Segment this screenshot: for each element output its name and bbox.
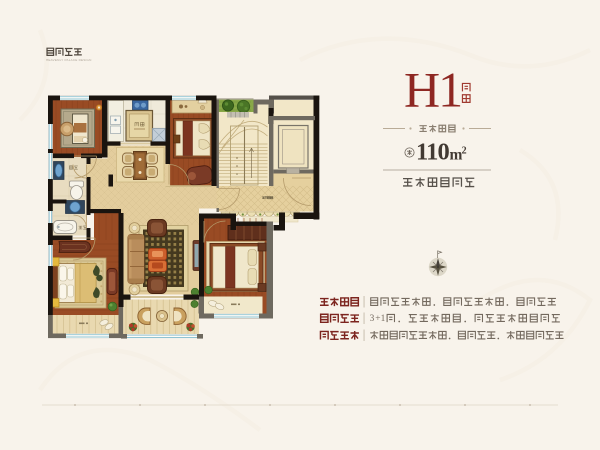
svg-text:3: 3	[370, 314, 375, 324]
svg-text:H1: H1	[404, 62, 461, 118]
svg-text:1: 1	[381, 314, 386, 324]
svg-text:HEAVENLY PALACE DESIGN: HEAVENLY PALACE DESIGN	[46, 58, 92, 62]
